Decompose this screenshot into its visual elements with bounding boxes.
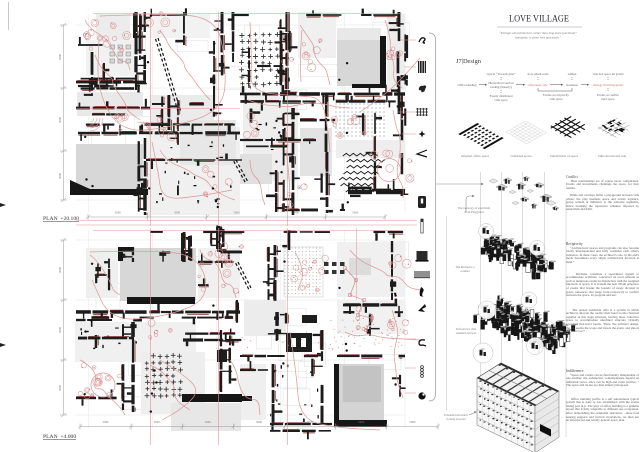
svg-text:Office building: Office building bbox=[458, 83, 477, 87]
svg-text:5000: 5000 bbox=[174, 211, 181, 215]
svg-text:LOVE VILLAGE: LOVE VILLAGE bbox=[509, 15, 569, 25]
svg-text:loading (linearly): loading (linearly) bbox=[490, 85, 512, 89]
svg-text:5000: 5000 bbox=[58, 385, 62, 392]
svg-text:conduct: conduct bbox=[460, 269, 470, 273]
svg-text:villa box space kit garten: villa box space kit garten bbox=[592, 72, 624, 76]
svg-text:dislocated, rule: dislocated, rule bbox=[529, 83, 549, 88]
svg-text:PLAN +4.000: PLAN +4.000 bbox=[43, 434, 76, 440]
svg-text:5000: 5000 bbox=[307, 420, 314, 424]
svg-text:Original office space: Original office space bbox=[461, 154, 490, 158]
svg-text:5000: 5000 bbox=[409, 420, 416, 424]
svg-text:Shift-directional rule: Shift-directional rule bbox=[598, 154, 627, 158]
svg-text:5000: 5000 bbox=[358, 420, 365, 424]
svg-text:5000: 5000 bbox=[58, 117, 62, 124]
svg-text:5000: 5000 bbox=[205, 420, 212, 424]
svg-text:villa space: villa space bbox=[494, 98, 508, 102]
svg-text:5000: 5000 bbox=[58, 173, 62, 180]
svg-text:PLAN +20.100: PLAN +20.100 bbox=[43, 216, 79, 222]
svg-text:J7|Design: J7|Design bbox=[456, 58, 482, 65]
svg-text:typical “Towards plan”: typical “Towards plan” bbox=[487, 71, 516, 76]
svg-text:footing lowered: footing lowered bbox=[446, 417, 466, 421]
svg-text:5000: 5000 bbox=[103, 420, 110, 424]
svg-text:5000: 5000 bbox=[154, 420, 161, 424]
svg-text:edified: edified bbox=[568, 72, 577, 76]
svg-text:analogy from Playgrund: analogy from Playgrund bbox=[593, 83, 624, 87]
svg-text:standards, is about love and d: standards, is about love and death.” bbox=[515, 36, 562, 41]
svg-text:5000: 5000 bbox=[115, 211, 122, 215]
svg-text:5000: 5000 bbox=[58, 327, 62, 334]
svg-text:store plinth order: store plinth order bbox=[527, 72, 548, 76]
svg-text:5000: 5000 bbox=[352, 211, 359, 215]
svg-text:5000: 5000 bbox=[256, 420, 263, 424]
svg-text:5000: 5000 bbox=[293, 211, 300, 215]
svg-text:villa space: villa space bbox=[549, 97, 563, 101]
svg-text:5000: 5000 bbox=[58, 267, 62, 274]
svg-text:Unfolded space: Unfolded space bbox=[510, 154, 532, 158]
svg-text:held space: held space bbox=[602, 97, 616, 101]
svg-text:5000: 5000 bbox=[234, 211, 241, 215]
svg-text:standard services: standard services bbox=[456, 331, 477, 335]
svg-text:Katzhaus: Katzhaus bbox=[566, 83, 578, 87]
svg-text:5000: 5000 bbox=[58, 54, 62, 61]
svg-text:Subdivision of space: Subdivision of space bbox=[550, 154, 579, 158]
svg-text:from Playgrund: from Playgrund bbox=[465, 210, 484, 214]
